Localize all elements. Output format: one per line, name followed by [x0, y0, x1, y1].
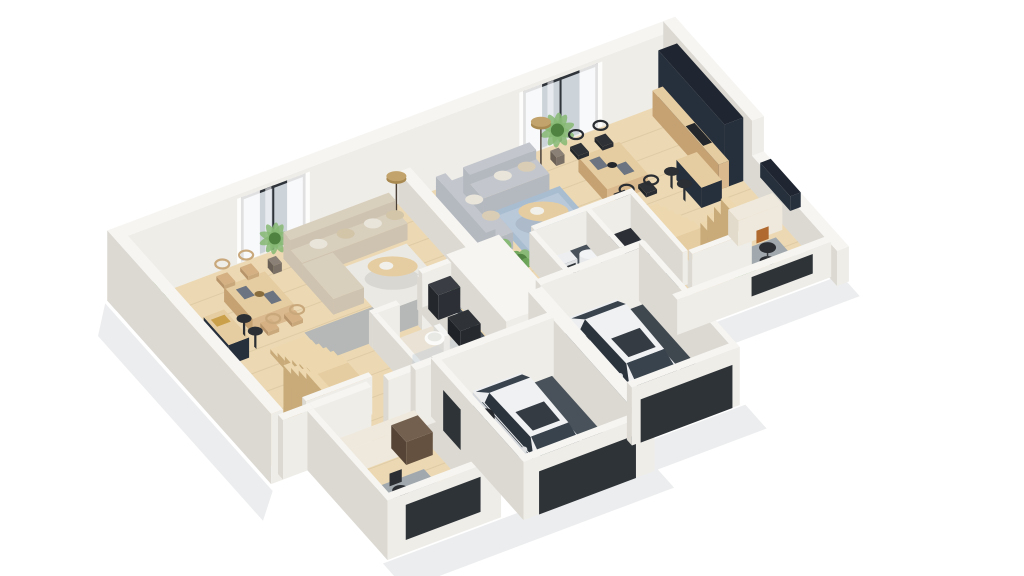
pillow	[310, 239, 328, 249]
isometric-duplex-floorplan	[0, 0, 1024, 576]
floor-plan-render	[0, 0, 1024, 576]
pillow	[482, 211, 500, 221]
pillow	[518, 162, 536, 172]
pillow	[364, 218, 382, 228]
pillow	[386, 210, 404, 220]
pillow	[494, 171, 512, 181]
pillow	[337, 229, 355, 239]
vase	[254, 291, 264, 297]
storage-rack-left	[428, 276, 460, 320]
pillow	[465, 195, 483, 205]
table-decor	[607, 162, 617, 168]
table-books	[379, 262, 393, 270]
table-books	[530, 207, 544, 215]
